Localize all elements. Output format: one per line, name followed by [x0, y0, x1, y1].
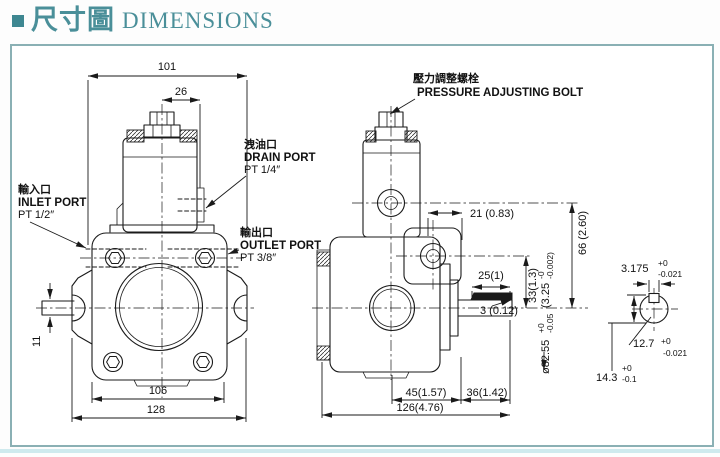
dim-45: 45(1.57): [406, 387, 447, 399]
page: 尺寸圖 DIMENSIONS: [0, 0, 720, 457]
dim-key-height-plus: +0: [622, 363, 632, 373]
spigot-dia-inch: (3.25: [540, 283, 552, 308]
outlet-cjk: 輸出口: [240, 225, 273, 239]
dim-key-width: 3.175: [621, 263, 649, 275]
dim-21: 21 (0.83): [470, 208, 514, 220]
dim-3: 3 (0.12): [480, 305, 518, 317]
inlet-port-label: 輸入口 INLET PORT PT 1/2″: [18, 182, 86, 248]
dim-36: 36(1.42): [467, 387, 508, 399]
dim-key-width-plus: +0: [658, 258, 668, 268]
front-view: [36, 104, 254, 398]
side-body: [330, 237, 440, 378]
inlet-en: INLET PORT: [18, 197, 86, 209]
side-dimensions: 21 (0.83) 66 (2.60) 33(1.3) 25(1) 3 (0.1…: [322, 203, 589, 418]
dim-25: 25(1): [478, 270, 504, 282]
dim-key-width-minus: -0.021: [658, 269, 682, 279]
inlet-thread: PT 1/2″: [18, 209, 54, 221]
front-mounting-ears: [72, 270, 247, 344]
shaft-key: [471, 293, 512, 300]
dim-shaft-dia: 12.7: [633, 338, 654, 350]
dim-key-height: 14.3: [596, 372, 617, 384]
keyway-slot: [649, 294, 659, 303]
outlet-en: OUTLET PORT: [240, 240, 321, 252]
dim-128: 128: [147, 404, 165, 416]
drain-thread: PT 1/4″: [244, 164, 280, 176]
pressure-bolt-en: PRESSURE ADJUSTING BOLT: [417, 87, 583, 99]
dim-66: 66 (2.60): [577, 211, 589, 255]
front-valve-tower: [117, 138, 206, 232]
spigot-dia-tol-minus: -0.05: [545, 313, 555, 333]
front-port-labels: 洩油口 DRAIN PORT PT 1/4″ 輸入口 INLET PORT PT…: [18, 137, 321, 264]
drain-en: DRAIN PORT: [244, 152, 316, 164]
outlet-port-label: 輸出口 OUTLET PORT PT 3/8″: [228, 225, 321, 264]
inlet-cjk: 輸入口: [18, 182, 51, 196]
side-rear-plate: [317, 250, 330, 360]
spigot-dia-metric: ø82.55: [540, 340, 552, 374]
pressure-bolt-label: 壓力調整螺栓 PRESSURE ADJUSTING BOLT: [390, 71, 583, 114]
dim-26: 26: [175, 86, 187, 98]
dim-key-height-minus: -0.1: [622, 374, 637, 384]
front-dimensions: 101 26 11 106 128: [31, 61, 247, 422]
spigot-dia-inch-tol-minus: -0.002): [545, 252, 555, 279]
side-outlet-boss: [404, 228, 461, 284]
side-adjusting-bolt: [366, 112, 417, 142]
drain-port-label: 洩油口 DRAIN PORT PT 1/4″: [206, 137, 316, 208]
dim-shaft-dia-plus: +0: [661, 336, 671, 346]
dim-126: 126(4.76): [396, 402, 443, 414]
side-view: [312, 106, 588, 380]
drain-cjk: 洩油口: [244, 137, 277, 151]
side-valve-tower: [363, 140, 420, 237]
dim-shaft-dia-minus: -0.021: [663, 348, 687, 358]
dim-11: 11: [31, 336, 43, 347]
dimensions-drawing: 101 26 11 106 128 洩油口 DRAIN PORT PT 1/4″: [0, 0, 720, 457]
shaft-section-detail: 3.175 +0 -0.021 12.7 +0 -0.021 14.3 +0 -…: [596, 258, 687, 384]
dim-106: 106: [149, 385, 167, 397]
dim-101: 101: [158, 61, 176, 73]
pressure-bolt-cjk: 壓力調整螺栓: [413, 71, 479, 85]
outlet-thread: PT 3/8″: [240, 252, 276, 264]
front-body: [92, 233, 227, 386]
